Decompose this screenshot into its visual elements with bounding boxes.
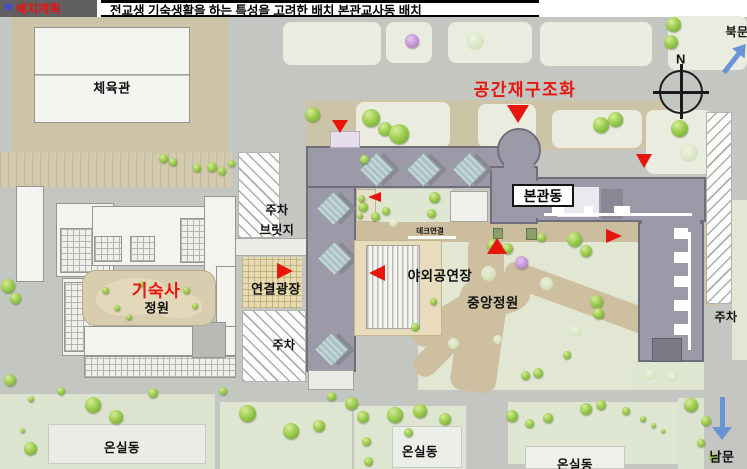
greenhouse-label-2: 온실동 — [402, 446, 438, 459]
tree-icon — [389, 218, 398, 227]
tree-icon — [169, 158, 177, 166]
tree-icon — [525, 419, 534, 428]
tree-icon — [644, 368, 656, 380]
parking-top-label: 주차 — [265, 204, 288, 216]
greenhouse-label-3: 온실동 — [557, 459, 593, 469]
tree-icon — [183, 287, 190, 294]
corridor-room — [674, 252, 688, 263]
marker-triangle-icon — [636, 154, 652, 168]
tree-icon — [228, 160, 235, 167]
tree-icon — [580, 245, 592, 257]
tree-icon — [327, 392, 336, 401]
tree-icon — [593, 308, 604, 319]
tree-icon — [305, 107, 320, 122]
tree-icon — [192, 303, 198, 309]
tree-icon — [540, 277, 553, 290]
gym-roof-divider — [35, 74, 189, 76]
tree-icon — [493, 335, 502, 344]
tree-icon — [4, 374, 16, 386]
connect-plaza-label: 연결광장 — [251, 283, 301, 296]
tree-icon — [661, 429, 665, 433]
tree-icon — [430, 298, 437, 305]
dorm-label: 기숙사 — [132, 283, 180, 300]
marker-triangle-icon — [368, 192, 381, 202]
corridor-line — [688, 232, 691, 350]
tree-icon — [20, 428, 25, 433]
dorm-building — [216, 266, 236, 330]
parking-mid-label: 주차 — [272, 339, 295, 351]
tree-icon — [387, 407, 403, 423]
page-title: 전교생 기숙생활을 하는 특성을 고려한 배치 본관교사동 배치 — [101, 0, 539, 17]
tree-icon — [102, 287, 109, 294]
tree-icon — [697, 439, 705, 447]
tree-icon — [357, 213, 363, 219]
tree-icon — [364, 457, 373, 466]
corridor-room — [584, 206, 593, 213]
tree-icon — [382, 207, 390, 215]
lavender-annex — [330, 131, 360, 148]
tree-icon — [313, 420, 325, 432]
tree-icon — [701, 416, 711, 426]
parking-right-label: 주차 — [714, 311, 737, 323]
compass-n-label: N — [676, 53, 686, 66]
tree-icon — [362, 437, 371, 446]
tree-icon — [362, 109, 380, 127]
lawn-east-edge — [732, 200, 747, 360]
marker-triangle-icon — [332, 120, 348, 133]
tree-icon — [429, 192, 440, 203]
north-gate-arrow-shaft — [722, 51, 741, 74]
tree-icon — [593, 117, 609, 133]
building-seam — [310, 150, 354, 184]
dorm-garden-label: 정원 — [145, 302, 170, 315]
marker-triangle-icon — [369, 265, 385, 281]
dorm-building — [16, 186, 44, 282]
tree-icon — [563, 351, 571, 359]
tree-icon — [622, 407, 630, 415]
tree-icon — [57, 387, 65, 395]
tree-icon — [651, 423, 656, 428]
tree-icon — [345, 397, 358, 410]
header-section-box: ✱ 배치계획 — [0, 0, 97, 17]
asterisk-icon: ✱ — [4, 3, 13, 14]
corridor-room — [674, 300, 688, 311]
tree-icon — [1, 279, 15, 293]
tree-icon — [533, 368, 543, 378]
tree-icon — [679, 143, 698, 162]
tree-icon — [358, 195, 365, 202]
tree-icon — [543, 413, 553, 423]
tree-icon — [219, 387, 227, 395]
tree-icon — [360, 155, 369, 164]
tree-icon — [85, 397, 101, 413]
tree-icon — [427, 209, 436, 218]
tree-icon — [640, 416, 646, 422]
tree-icon — [580, 403, 592, 415]
deck-label-bar — [408, 236, 456, 239]
tree-icon — [159, 154, 168, 163]
greenhouse-label-1: 온실동 — [104, 442, 140, 455]
tree-icon — [466, 32, 484, 50]
section-label: 배치계획 — [16, 3, 60, 15]
corridor-line — [544, 213, 692, 216]
tree-icon — [608, 112, 623, 127]
deck-connect-label: 데크연결 — [416, 227, 444, 235]
central-garden-label: 중앙정원 — [467, 296, 519, 310]
marker-triangle-icon — [606, 229, 622, 243]
tree-icon — [590, 295, 603, 308]
tree-icon — [439, 413, 451, 425]
corridor-room — [674, 324, 688, 335]
tree-icon — [10, 293, 21, 304]
dorm-roof-grid — [94, 236, 122, 262]
main-building-west-foot — [308, 370, 354, 390]
parking-hatch — [706, 112, 732, 304]
tree-icon — [684, 398, 698, 412]
space-restructure-label: 공간재구조화 — [474, 82, 577, 99]
south-gate-arrowhead-icon — [712, 427, 732, 440]
main-building-label-box: 본관동 — [512, 184, 574, 207]
north-gate-label: 북문 — [725, 26, 747, 38]
tree-icon — [521, 371, 530, 380]
compass-hline — [653, 91, 709, 94]
lawn-block — [283, 22, 381, 65]
deck-planter — [526, 228, 537, 240]
lawn-block — [448, 22, 532, 63]
gym-building — [34, 27, 190, 123]
lawn-block — [540, 22, 652, 66]
inner-court-lawn — [376, 189, 452, 222]
tree-icon — [537, 233, 546, 242]
corridor-room — [674, 276, 688, 287]
tree-icon — [448, 338, 459, 349]
tree-icon — [28, 396, 34, 402]
dorm-roof-grid — [130, 236, 155, 262]
tree-icon — [207, 162, 217, 172]
tree-icon — [481, 266, 496, 281]
building-dark-block — [652, 338, 682, 362]
dorm-roof-grid — [84, 356, 236, 378]
tree-icon — [666, 17, 681, 32]
tree-icon — [126, 314, 132, 320]
tree-icon — [404, 428, 413, 437]
tree-icon — [389, 124, 409, 144]
tree-icon — [218, 167, 226, 175]
tree-icon — [413, 404, 427, 418]
tree-icon — [515, 256, 528, 269]
tree-icon — [570, 325, 582, 337]
marker-triangle-icon — [487, 238, 507, 254]
outdoor-stage-label: 야외공연장 — [408, 269, 473, 283]
building-seam — [504, 164, 534, 176]
tree-icon — [664, 35, 678, 49]
tree-icon — [193, 164, 201, 172]
tree-icon — [357, 411, 369, 423]
tree-icon — [671, 120, 688, 137]
tree-icon — [239, 405, 256, 422]
corridor-room — [614, 206, 630, 213]
tree-icon — [148, 388, 158, 398]
tree-icon — [506, 410, 518, 422]
main-building-label: 본관동 — [524, 186, 563, 206]
inner-court-room — [450, 191, 488, 222]
bridge-label: 브릿지 — [260, 224, 295, 236]
bridge-deck — [226, 238, 310, 256]
amphitheater-seating — [366, 245, 420, 329]
tree-icon — [109, 410, 123, 424]
tree-icon — [405, 34, 419, 48]
tree-icon — [283, 423, 299, 439]
corridor-room — [552, 206, 564, 213]
marker-triangle-icon — [507, 105, 529, 123]
tree-icon — [24, 442, 37, 455]
corridor-room — [674, 228, 688, 239]
south-gate-arrow-icon — [720, 397, 725, 428]
tree-icon — [411, 323, 419, 331]
tree-icon — [596, 400, 606, 410]
tree-icon — [114, 305, 120, 311]
marker-triangle-icon — [277, 263, 293, 279]
gym-label: 체육관 — [93, 82, 130, 95]
site-plan-slide: 체육관 기숙사 정원 공간재구조화 본관동 주차 브릿지 연결광장 주차 데크연… — [0, 0, 747, 469]
building-seam — [642, 218, 700, 226]
dorm-annex — [192, 322, 226, 358]
tree-icon — [666, 370, 678, 382]
tree-icon — [358, 202, 368, 212]
tree-icon — [567, 232, 582, 247]
tree-icon — [371, 212, 380, 221]
south-gate-label: 남문 — [710, 451, 735, 464]
